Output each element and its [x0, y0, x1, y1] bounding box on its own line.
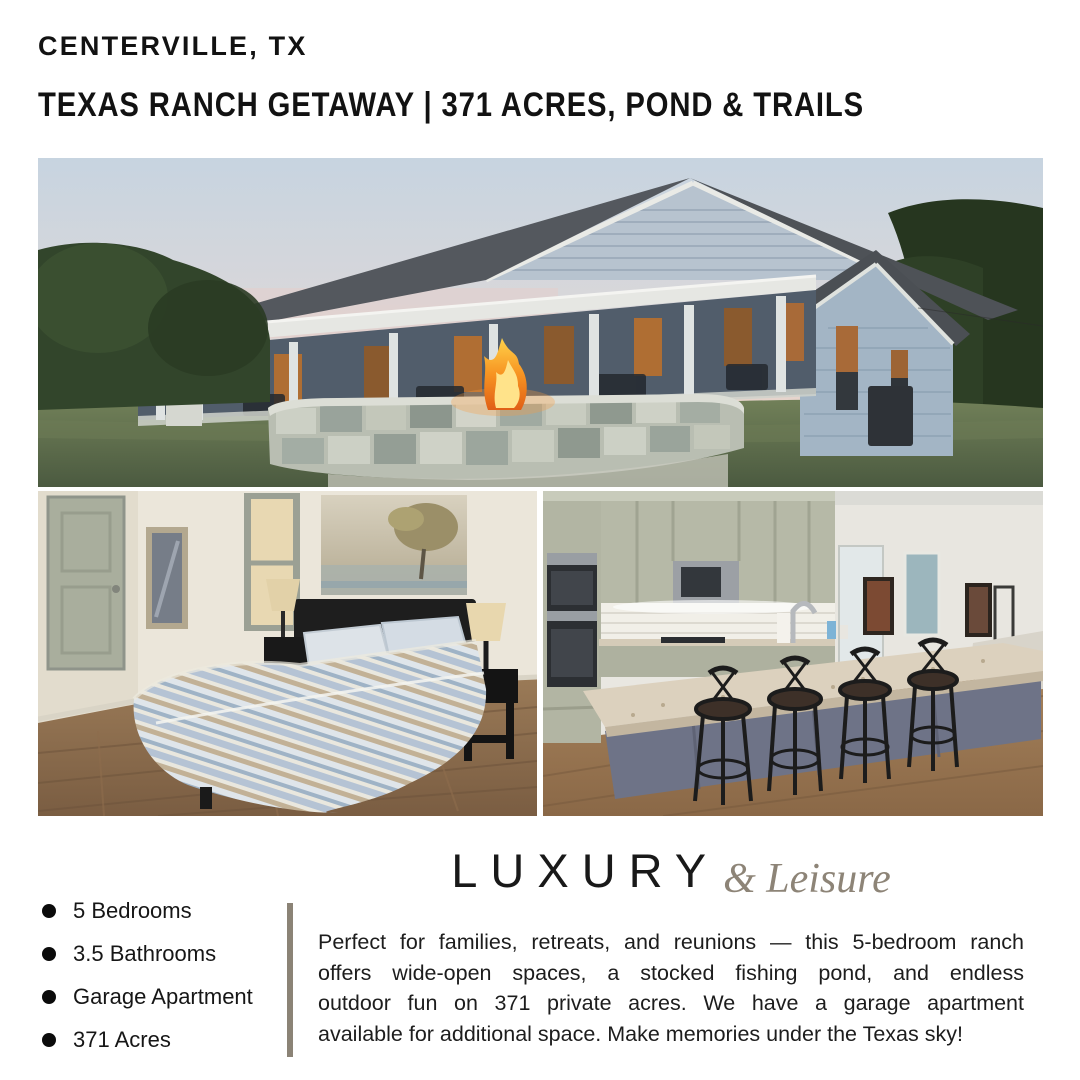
kitchen-photo	[543, 491, 1043, 816]
description-line: offers wide-open spaces, a stocked fishi…	[318, 958, 1024, 989]
feature-garage-apartment: Garage Apartment	[42, 975, 253, 1018]
feature-bedrooms: 5 Bedrooms	[42, 889, 253, 932]
feature-list: 5 Bedrooms 3.5 Bathrooms Garage Apartmen…	[42, 889, 253, 1061]
brand-lockup: LUXURY & Leisure	[318, 843, 1024, 902]
feature-bathrooms: 3.5 Bathrooms	[42, 932, 253, 975]
listing-title: TEXAS RANCH GETAWAY | 371 ACRES, POND & …	[38, 86, 864, 125]
wall-art-tree-painting	[321, 495, 467, 595]
wall-mirror	[146, 527, 188, 629]
description-line: outdoor fun on 371 private acres. We hav…	[318, 988, 1024, 1019]
brand-word-leisure-script: & Leisure	[723, 856, 891, 902]
description-line: Perfect for families, retreats, and reun…	[318, 927, 1024, 958]
double-wall-oven	[543, 501, 601, 743]
listing-flyer: CENTERVILLE, TX TEXAS RANCH GETAWAY | 37…	[0, 0, 1080, 1080]
bedroom-photo	[38, 491, 537, 816]
ranch-exterior-illustration	[38, 158, 1043, 487]
bullet-icon	[42, 947, 56, 961]
feature-label: 371 Acres	[73, 1027, 171, 1053]
bedroom-door	[48, 497, 124, 669]
brand-word-luxury: LUXURY	[451, 843, 719, 899]
location-heading: CENTERVILLE, TX	[38, 31, 308, 62]
main-photo-ranch-exterior	[38, 158, 1043, 487]
bullet-icon	[42, 990, 56, 1004]
blue-door	[905, 553, 939, 635]
feature-label: Garage Apartment	[73, 984, 253, 1010]
description-line: available for additional space. Make mem…	[318, 1019, 1024, 1050]
vertical-divider	[287, 903, 293, 1057]
framed-art-right	[967, 585, 990, 635]
property-description: Perfect for families, retreats, and reun…	[318, 927, 1024, 1049]
bedroom-illustration	[38, 491, 537, 816]
feature-label: 3.5 Bathrooms	[73, 941, 216, 967]
bullet-icon	[42, 904, 56, 918]
feature-acres: 371 Acres	[42, 1018, 253, 1061]
feature-label: 5 Bedrooms	[73, 898, 192, 924]
bullet-icon	[42, 1033, 56, 1047]
framed-art-left	[865, 579, 892, 633]
kitchen-illustration	[543, 491, 1043, 816]
